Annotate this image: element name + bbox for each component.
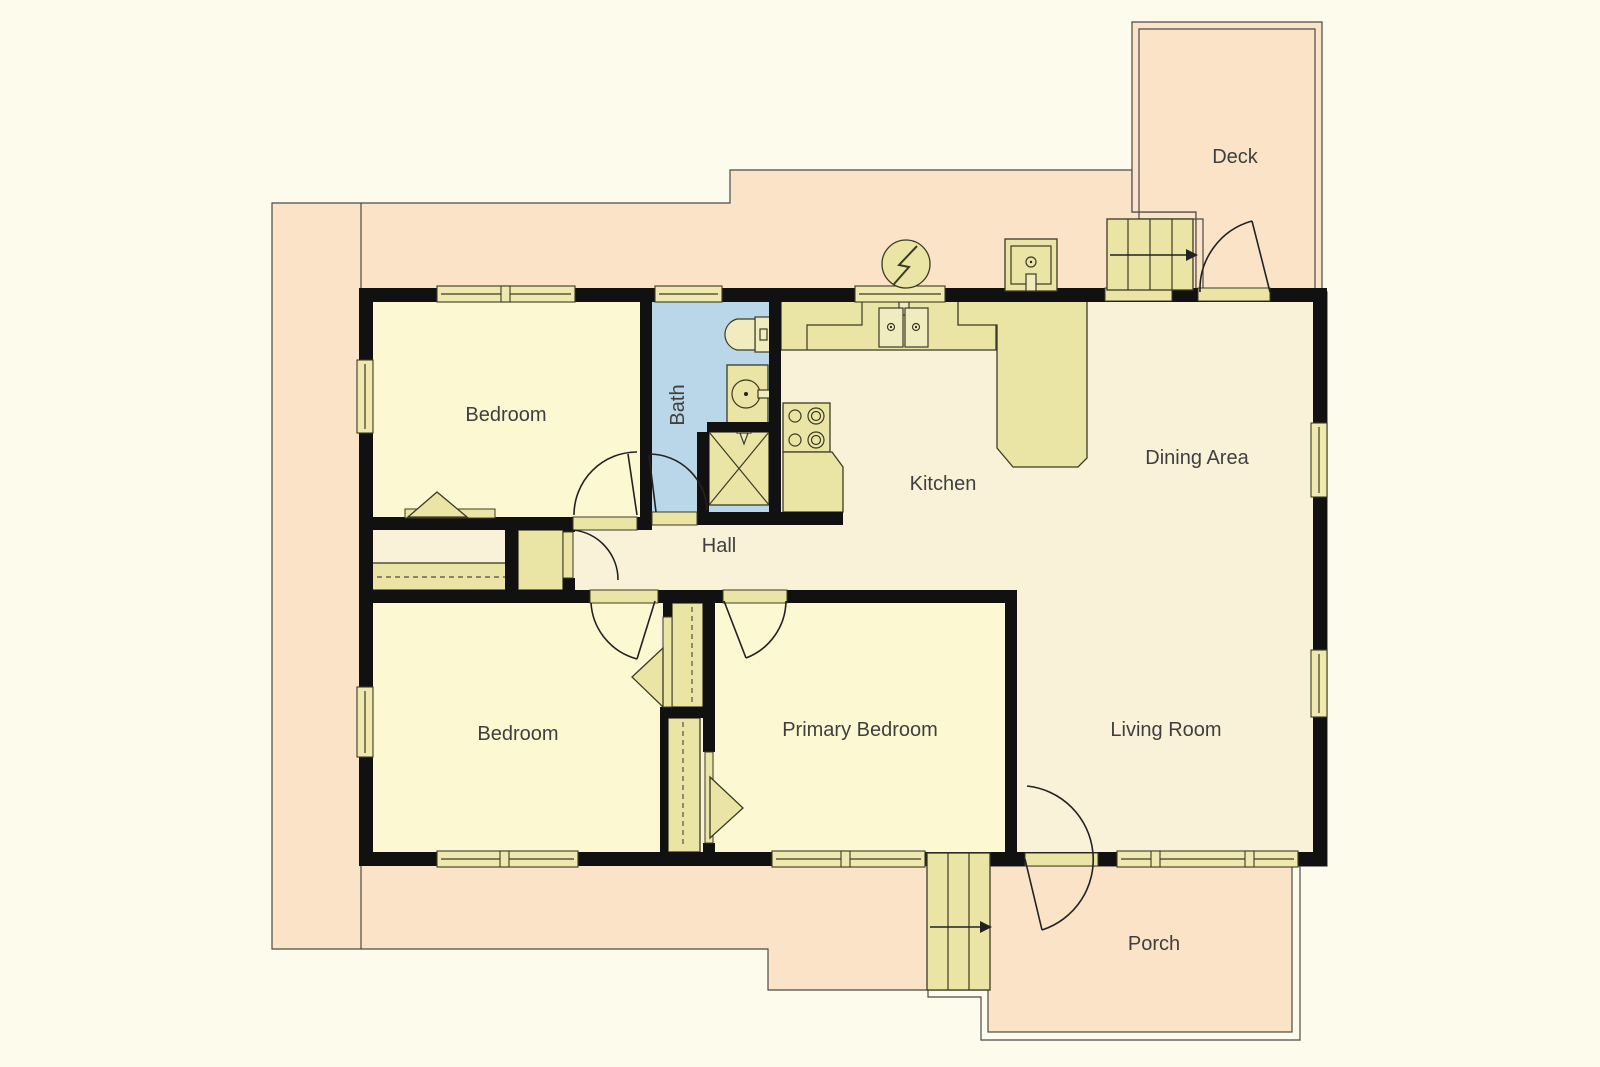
primary-door-sill	[723, 590, 787, 603]
bedroom-top-door-sill	[573, 517, 637, 530]
utility-panel-icon	[1005, 239, 1057, 291]
primary-closet	[668, 718, 700, 852]
electric-meter-icon	[882, 240, 930, 288]
toilet-icon	[725, 317, 771, 352]
floor-plan: Deck Bedroom Bath Kitchen Dining Area Ha…	[0, 0, 1600, 1067]
dining-label: Dining Area	[1145, 447, 1249, 469]
hall-label: Hall	[702, 535, 736, 557]
window-dining	[1311, 423, 1327, 497]
window-primary-bedroom	[772, 851, 925, 867]
window-bath	[655, 286, 722, 302]
bedroom-top-label: Bedroom	[465, 404, 546, 426]
bedroom-bottom-label: Bedroom	[477, 723, 558, 745]
bedroom-bottom-closet	[672, 603, 703, 707]
kitchen-sink-icon	[879, 302, 928, 347]
window-bedroom-top-side	[357, 360, 373, 433]
window-living-room	[1117, 851, 1298, 867]
bathroom-sink-icon	[727, 365, 770, 423]
porch-stairs-icon	[927, 853, 992, 990]
window-bedroom-bottom-side	[357, 687, 373, 757]
porch-label: Porch	[1128, 933, 1180, 955]
linen-door-sill	[563, 532, 573, 578]
living-room-label: Living Room	[1110, 719, 1221, 741]
shower-icon	[709, 424, 769, 505]
deck-label: Deck	[1212, 146, 1259, 168]
window-bedroom-bottom	[437, 851, 578, 867]
bedroom-bottom-door-sill	[590, 590, 658, 603]
floor-plan-drawing: Deck Bedroom Bath Kitchen Dining Area Ha…	[0, 0, 1600, 1067]
window-bedroom-top	[437, 286, 575, 302]
bath-door-sill	[652, 512, 697, 525]
kitchen-label: Kitchen	[910, 473, 977, 495]
window-living-side	[1311, 650, 1327, 717]
linen-closet	[518, 530, 563, 590]
bath-label: Bath	[667, 384, 689, 425]
closet-door-panel	[663, 617, 672, 707]
deck-stairs-icon	[1107, 219, 1198, 290]
stove-icon	[783, 403, 830, 452]
window-kitchen	[855, 286, 945, 302]
kitchen-lower-counter	[783, 452, 843, 512]
front-door-sill	[1025, 853, 1098, 866]
primary-bedroom-label: Primary Bedroom	[782, 719, 938, 741]
deck-door-sill	[1198, 288, 1270, 301]
